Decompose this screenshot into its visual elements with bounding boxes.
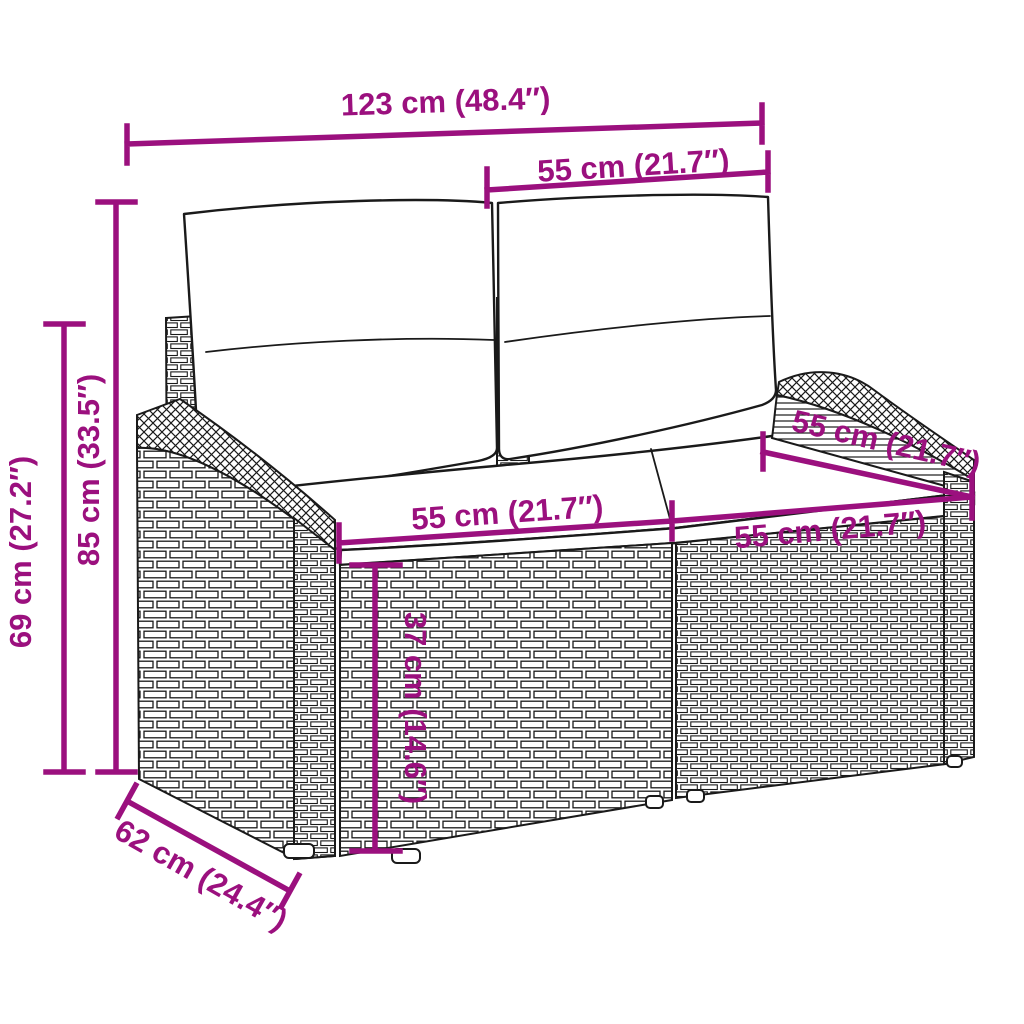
base-front-panel-left [340, 543, 672, 856]
dim-armrest-height-label: 69 cm (27.2″) [3, 456, 38, 648]
dim-seat-height-label: 37 cm (14.6″) [398, 612, 433, 804]
left-armrest-corner-post [294, 518, 335, 859]
sofa-foot [646, 796, 663, 808]
dim-overall-width-label: 123 cm (48.4″) [340, 80, 551, 122]
sofa-foot [284, 844, 314, 858]
dim-backrest-width-label: 55 cm (21.7″) [536, 142, 730, 189]
dim-total-height-label: 85 cm (33.5″) [71, 374, 106, 566]
dimension-diagram: 123 cm (48.4″) 55 cm (21.7″) 85 cm (33.5… [0, 0, 1024, 1024]
loveseat-diagram-svg: 123 cm (48.4″) 55 cm (21.7″) 85 cm (33.5… [0, 0, 1024, 1024]
back-cushion-right [498, 195, 776, 459]
sofa-foot [947, 756, 962, 767]
dim-total-height: 85 cm (33.5″) [71, 202, 135, 772]
sofa-foot [687, 790, 704, 802]
base-front-panel-right [676, 516, 946, 798]
